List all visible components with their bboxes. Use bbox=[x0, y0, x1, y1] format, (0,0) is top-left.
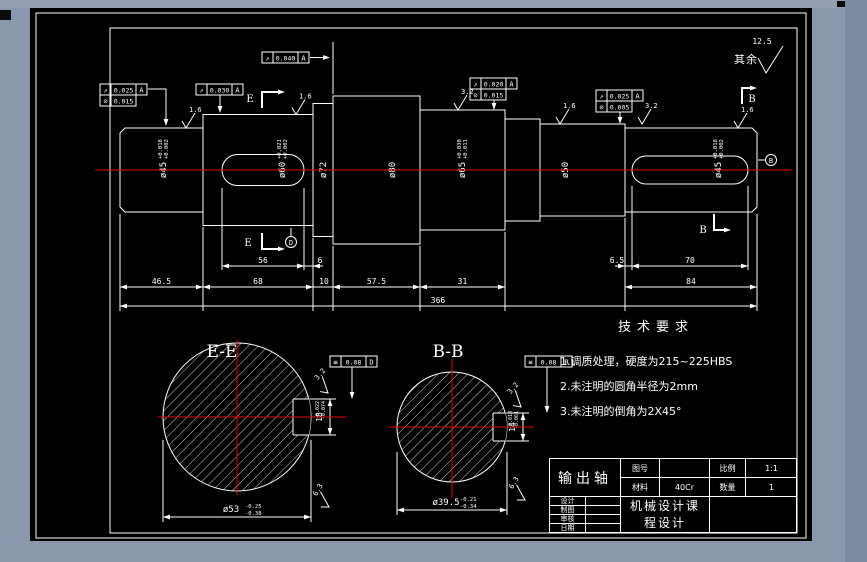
sign-row-draw-value bbox=[586, 506, 621, 515]
window-titlebar bbox=[0, 0, 867, 8]
sign-row-design-label: 设计 bbox=[550, 497, 586, 506]
title-block: 输出轴 图号 比例 1:1 材料 40Cr 数量 1 设计 制图 审核 日期 机… bbox=[549, 458, 797, 533]
drawing-no-value bbox=[660, 459, 710, 478]
window-bottom-margin bbox=[0, 541, 845, 562]
rest-roughness-label: 其余 bbox=[734, 51, 758, 67]
sign-row-check-value bbox=[586, 515, 621, 524]
tech-req-title: 技术要求 bbox=[618, 316, 810, 335]
material-value: 40Cr bbox=[660, 478, 710, 497]
tech-req-item-1: 1.调质处理，硬度为215~225HBS bbox=[560, 349, 810, 374]
sign-row-date-value bbox=[586, 524, 621, 532]
sign-row-draw-label: 制图 bbox=[550, 506, 586, 515]
scale-label: 比例 bbox=[710, 459, 746, 478]
qty-label: 数量 bbox=[710, 478, 746, 497]
part-name: 输出轴 bbox=[550, 459, 621, 497]
window-edge-mark bbox=[0, 10, 11, 20]
course-title-line1: 机械设计课 bbox=[630, 498, 700, 515]
course-title-line2: 程设计 bbox=[644, 515, 686, 532]
title-block-empty-cell bbox=[710, 497, 797, 532]
scale-value: 1:1 bbox=[746, 459, 797, 478]
sign-row-date-label: 日期 bbox=[550, 524, 586, 532]
cad-window: ø45+0.018+0.002ø60+0.021+0.002ø72ø80ø65+… bbox=[0, 0, 867, 562]
qty-value: 1 bbox=[746, 478, 797, 497]
window-left-margin bbox=[0, 8, 30, 541]
tech-req-item-3: 3.未注明的倒角为2X45° bbox=[560, 399, 810, 424]
window-right-panel bbox=[845, 0, 867, 562]
sign-row-check-label: 审核 bbox=[550, 515, 586, 524]
drawing-no-label: 图号 bbox=[621, 459, 660, 478]
sign-row-design-value bbox=[586, 497, 621, 506]
window-right-margin bbox=[812, 8, 845, 541]
tech-req-item-2: 2.未注明的圆角半径为2mm bbox=[560, 374, 810, 399]
material-label: 材料 bbox=[621, 478, 660, 497]
technical-requirements: 技术要求 1.调质处理，硬度为215~225HBS 2.未注明的圆角半径为2mm… bbox=[560, 316, 810, 424]
course-title: 机械设计课 程设计 bbox=[621, 497, 710, 532]
